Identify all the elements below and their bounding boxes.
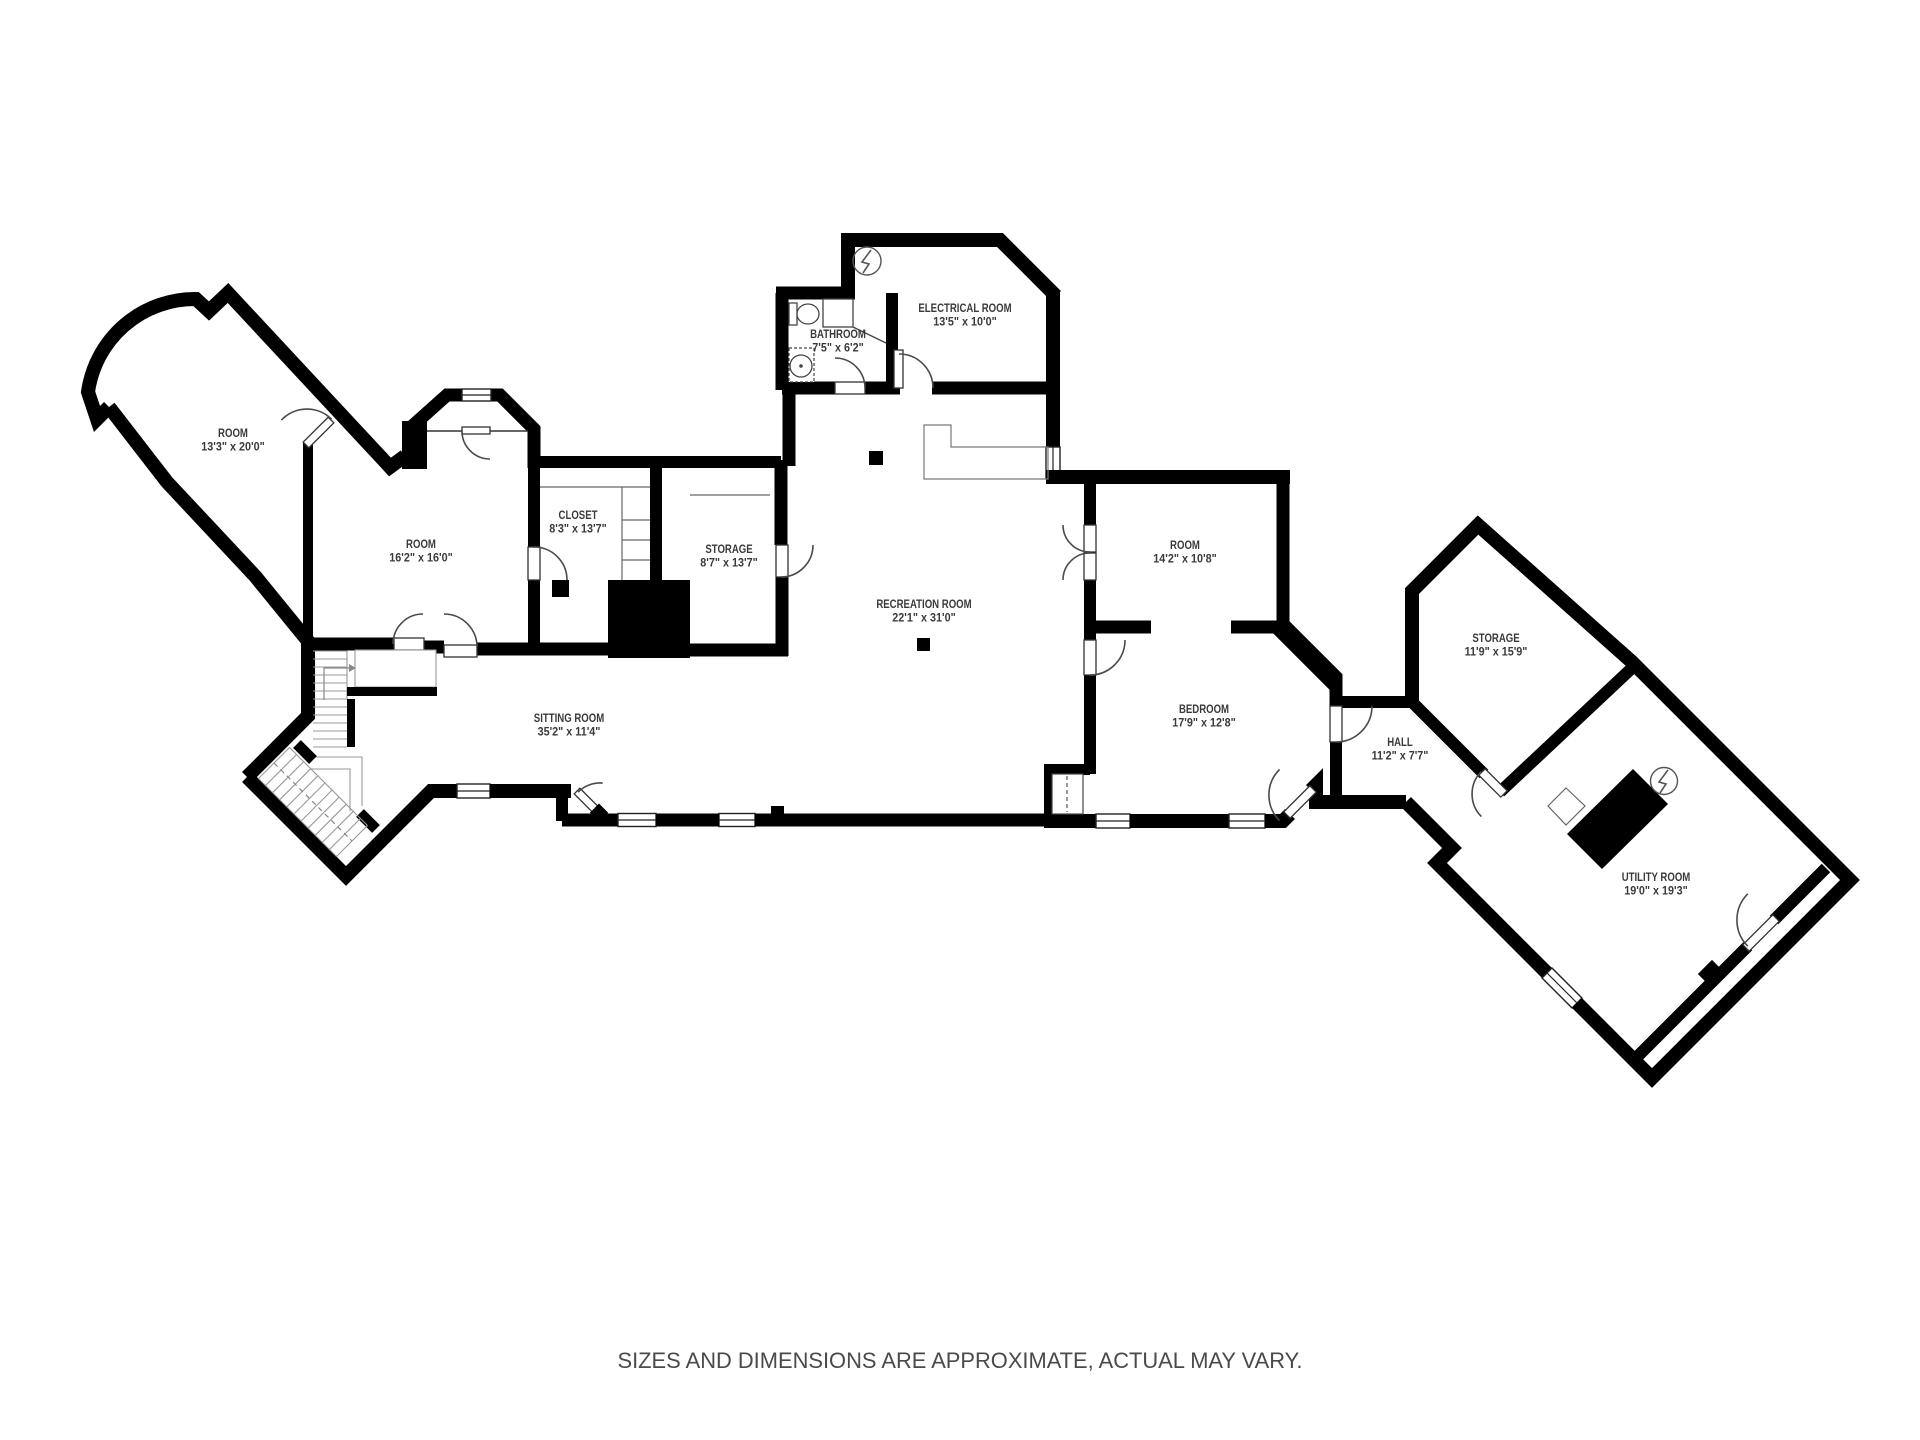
svg-text:SITTING ROOM: SITTING ROOM [534,711,604,725]
svg-text:ELECTRICAL ROOM: ELECTRICAL ROOM [918,301,1011,315]
svg-text:BEDROOM: BEDROOM [1179,702,1229,716]
svg-text:HALL: HALL [1387,735,1413,749]
svg-text:11'9" x 15'9": 11'9" x 15'9" [1465,645,1528,659]
svg-text:16'2" x 16'0": 16'2" x 16'0" [389,551,452,565]
svg-text:ROOM: ROOM [406,537,436,551]
svg-text:STORAGE: STORAGE [705,542,752,556]
svg-text:11'2" x 7'7": 11'2" x 7'7" [1372,749,1429,763]
svg-text:ROOM: ROOM [218,426,248,440]
svg-text:UTILITY ROOM: UTILITY ROOM [1622,870,1691,884]
svg-text:8'3" x 13'7": 8'3" x 13'7" [549,522,606,536]
svg-text:22'1" x 31'0": 22'1" x 31'0" [892,611,955,625]
svg-text:13'5" x 10'0": 13'5" x 10'0" [933,315,996,329]
svg-text:SIZES AND DIMENSIONS ARE APPRO: SIZES AND DIMENSIONS ARE APPROXIMATE, AC… [618,1348,1303,1373]
svg-text:RECREATION ROOM: RECREATION ROOM [876,597,971,611]
svg-text:8'7" x 13'7": 8'7" x 13'7" [700,556,757,570]
svg-text:STORAGE: STORAGE [1472,631,1519,645]
svg-text:17'9" x 12'8": 17'9" x 12'8" [1172,716,1235,730]
svg-text:7'5" x 6'2": 7'5" x 6'2" [812,341,863,355]
svg-text:BATHROOM: BATHROOM [810,327,866,341]
svg-text:14'2" x 10'8": 14'2" x 10'8" [1153,552,1216,566]
svg-text:35'2" x 11'4": 35'2" x 11'4" [538,725,601,739]
svg-text:ROOM: ROOM [1170,538,1200,552]
svg-text:19'0" x 19'3": 19'0" x 19'3" [1624,884,1687,898]
svg-text:13'3" x 20'0": 13'3" x 20'0" [201,440,264,454]
svg-text:CLOSET: CLOSET [559,508,598,522]
